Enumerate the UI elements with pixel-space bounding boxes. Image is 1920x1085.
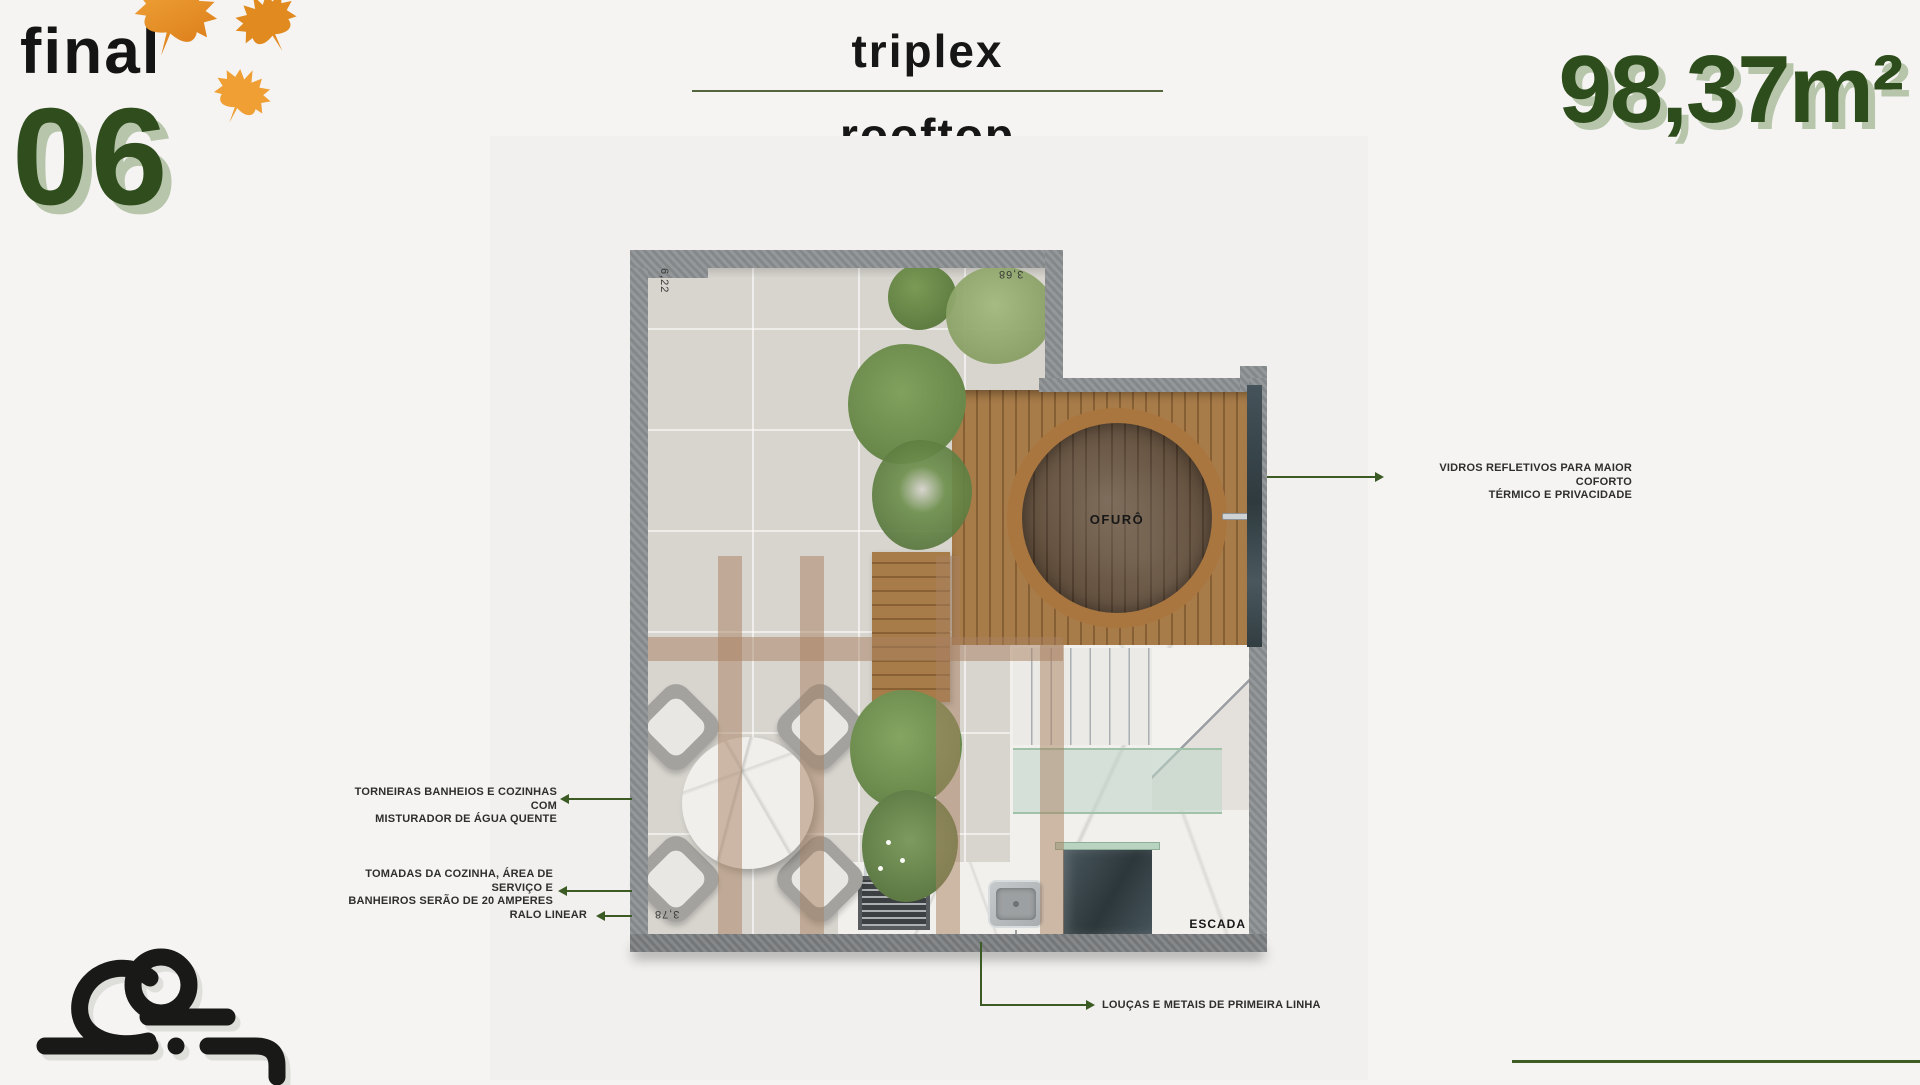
annotation-line (568, 798, 632, 800)
wall-left (630, 250, 648, 952)
page-subtitle: rooftop (692, 108, 1163, 162)
dimension-label: 6,22 (658, 268, 670, 293)
annotation-text: TÉRMICO E PRIVACIDADE (1400, 489, 1632, 503)
brand-logo-mark (30, 935, 300, 1085)
wall-extension-top (1039, 378, 1267, 392)
stair-treads (1013, 648, 1152, 745)
annotation-torneiras: TORNEIRAS BANHEIOS E COZINHAS COM MISTUR… (337, 786, 557, 827)
pergola-beam (648, 637, 1063, 661)
annotation-tomadas: TOMADAS DA COZINHA, ÁREA DE SERVIÇO E BA… (323, 868, 553, 909)
pergola-beam (800, 556, 824, 934)
slide: final 06 triplex rooftop 98,37m² OFURÔ E… (0, 0, 1920, 1080)
pergola-beam (718, 556, 742, 934)
footer-rule (1512, 1060, 1920, 1063)
annotation-vidros: VIDROS REFLETIVOS PARA MAIOR COFORTO TÉR… (1400, 462, 1632, 503)
arrow-icon (1086, 1000, 1095, 1010)
pergola-beam (1040, 645, 1064, 934)
annotation-line (980, 1004, 1086, 1006)
glass-shelf (1055, 842, 1160, 850)
arrow-icon (560, 794, 569, 804)
annotation-text: VIDROS REFLETIVOS PARA MAIOR COFORTO (1400, 462, 1632, 489)
annotation-line (604, 915, 632, 917)
plan-title-block: triplex rooftop (692, 0, 1163, 162)
annotation-text: LOUÇAS E METAIS DE PRIMEIRA LINHA (1102, 999, 1422, 1013)
arrow-icon (596, 911, 605, 921)
annotation-line (566, 890, 632, 892)
pergola-beam (936, 556, 960, 934)
annotation-text: RALO LINEAR (457, 909, 587, 923)
area-value: 98,37m² (1558, 42, 1902, 138)
annotation-text: MISTURADOR DE ÁGUA QUENTE (337, 813, 557, 827)
wall-bottom (630, 934, 1267, 952)
annotation-text: TOMADAS DA COZINHA, ÁREA DE SERVIÇO E (323, 868, 553, 895)
wall-parapet-stub (648, 268, 708, 278)
plant-flowers (886, 840, 891, 845)
dimension-label: 3,78 (654, 908, 679, 920)
ofuro-faucet (1222, 513, 1250, 520)
dimension-label: 3,68 (998, 268, 1023, 280)
annotation-line (980, 942, 982, 1006)
arrow-icon (558, 886, 567, 896)
escada-label: ESCADA (1150, 917, 1246, 931)
annotation-text: BANHEIROS SERÃO DE 20 AMPERES (323, 895, 553, 909)
wall-top (630, 250, 1063, 268)
maple-leaf-icon (118, 0, 318, 156)
annotation-text: TORNEIRAS BANHEIOS E COZINHAS COM (337, 786, 557, 813)
arrow-icon (1375, 472, 1384, 482)
annotation-line (1267, 476, 1377, 478)
reflective-glass-panel (1247, 385, 1262, 647)
sink-drain (1013, 901, 1019, 907)
annotation-loucas: LOUÇAS E METAIS DE PRIMEIRA LINHA (1102, 999, 1422, 1013)
wall-right-upper (1045, 250, 1063, 392)
page-title: triplex (692, 24, 1163, 78)
title-divider (692, 90, 1163, 92)
annotation-ralo: RALO LINEAR (457, 909, 587, 923)
dining-table (682, 737, 814, 869)
ofuro-label: OFURÔ (1057, 512, 1177, 527)
glass-partition (1063, 850, 1152, 934)
